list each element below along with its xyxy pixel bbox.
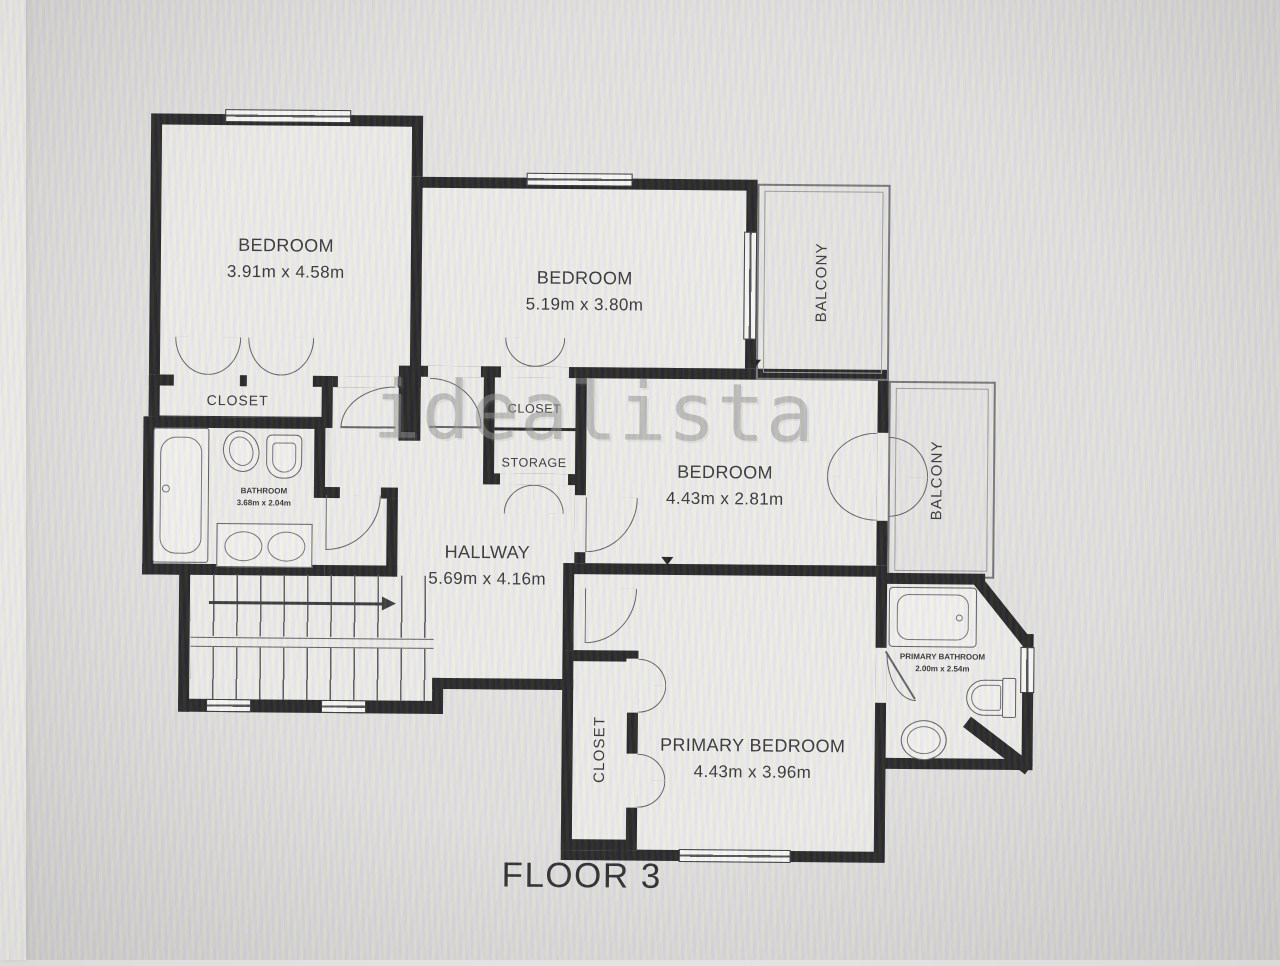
opening-bedroom3-door [574,495,585,552]
wall-primary-bathroom-top [882,573,985,585]
wall-hallway-bottom [432,678,573,690]
primary-bidet-bowl [907,726,941,754]
opening-primary-bathroom-door [875,648,886,703]
bathtub-drain [162,485,170,493]
primary-bathtub [889,587,978,648]
idealista-watermark: idealista [372,370,815,454]
room-name: BEDROOM [526,264,644,292]
floor-title: FLOOR 3 [501,856,662,897]
room-dims: 4.43m x 3.96m [660,759,846,786]
label-bedroom-top-left: BEDROOM 3.91m x 4.58m [227,232,345,286]
label-balcony-right: BALCONY [928,440,946,520]
window-primary-bedroom [679,849,791,863]
sink-right [267,531,305,561]
room-name: PRIMARY BEDROOM [660,732,846,761]
toilet-bowl [225,433,257,469]
opening-closet-left-1 [174,374,240,388]
wall-stairs-left [178,570,190,712]
wall-bathroom-door-right [381,487,398,498]
label-primary-bedroom: PRIMARY BEDROOM 4.43m x 3.96m [660,732,846,786]
label-hallway: HALLWAY 5.69m x 4.16m [428,539,546,593]
room-dims: 5.69m x 4.16m [428,566,546,593]
window-stairs-2 [321,700,366,713]
room-dims: 5.19m x 3.80m [526,291,644,318]
room-name: PRIMARY BATHROOM [900,651,985,664]
room-name: BEDROOM [227,232,345,260]
bathtub [152,427,209,562]
window-bedroom2-balcony [743,232,757,340]
label-primary-bathroom: PRIMARY BATHROOM 2.00m x 2.54m [900,651,985,676]
room-name: BATHROOM [237,485,291,497]
stairs-upper-flight [191,574,435,638]
label-bathroom: BATHROOM 3.68m x 2.04m [237,485,291,509]
label-balcony-top: BALCONY [813,242,831,322]
floor-plan: BEDROOM 3.91m x 4.58m BEDROOM 5.19m x 3.… [0,0,1280,966]
window-bedroom1 [225,109,351,123]
opening-primary-area-door [574,585,586,643]
room-dims: 3.68m x 2.04m [237,497,291,509]
bathtub-basin [159,437,202,554]
bidet-bowl [272,442,296,472]
room-dims: 2.00m x 2.54m [900,663,985,676]
opening-french-doors [877,433,889,521]
primary-toilet-bowl [971,685,1001,711]
bidet [266,434,302,478]
primary-bathtub-drain [956,614,963,621]
marker-triangle-wall [661,557,673,565]
label-bedroom-top-mid: BEDROOM 5.19m x 3.80m [526,264,644,318]
room-name: BEDROOM [666,459,784,487]
primary-toilet-tank [1002,678,1016,718]
primary-toilet [966,680,1006,716]
primary-bidet [901,720,947,760]
label-closet-left: CLOSET [207,392,269,409]
label-bedroom-mid-right: BEDROOM 4.43m x 2.81m [666,459,784,513]
room-dims: 4.43m x 2.81m [666,486,784,513]
opening-closet-left-2 [247,374,313,388]
window-primary-bathroom [1020,647,1034,693]
opening-storage-bottom [500,473,568,485]
window-bedroom2-top [527,173,633,187]
room-dims: 3.91m x 4.58m [227,259,345,286]
window-stairs-1 [206,699,251,712]
label-closet-primary: CLOSET [591,716,609,783]
vanity-double-sink [216,523,312,568]
floor-plan-photo: BEDROOM 3.91m x 4.58m BEDROOM 5.19m x 3.… [0,0,1280,960]
room-name: HALLWAY [428,539,546,567]
stairs-direction-arrow [382,596,396,610]
stairs-landing [191,637,434,649]
stairs-lower-flight [190,647,433,701]
wall-bathroom-stub [314,418,326,489]
wall-hallway-corner [432,678,443,714]
sink-left [224,531,262,561]
